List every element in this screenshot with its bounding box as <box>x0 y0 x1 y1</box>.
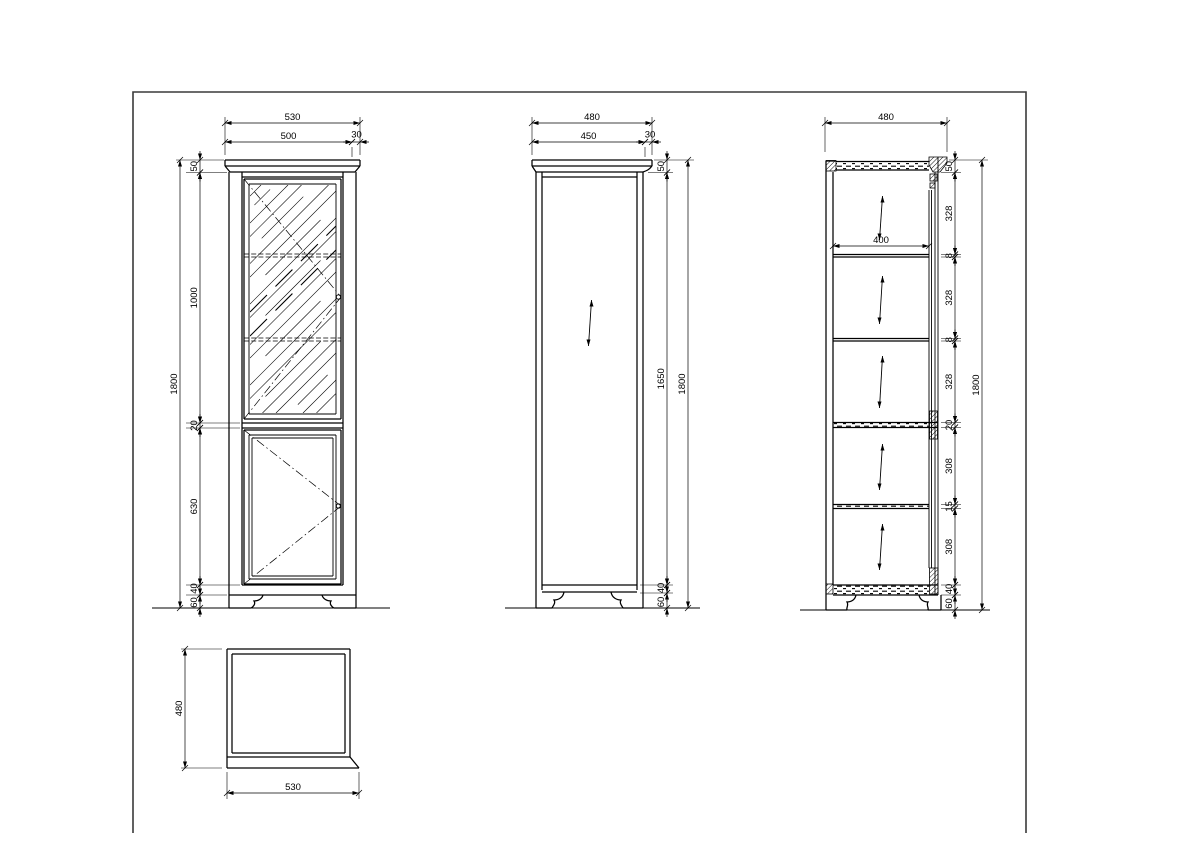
dim-section-shelf1: 8 <box>944 253 955 258</box>
shelf-adjust-arrow <box>880 196 883 240</box>
dim-side-height-total: 1800 <box>677 373 688 394</box>
crown-profile <box>643 166 652 172</box>
dim-front-crown-height: 50 <box>189 161 200 172</box>
dim-top-width: 530 <box>285 782 301 793</box>
front-view: 530500301800501000206304060 <box>152 112 390 617</box>
dim-section-bay3: 328 <box>944 374 955 390</box>
dim-front-width-body: 500 <box>281 131 297 142</box>
dim-section-shelf2: 8 <box>944 337 955 342</box>
dim-side-foot: 60 <box>656 597 667 608</box>
right-foot-profile <box>322 595 334 608</box>
section-view: 4804005032883288328203081530840601800 <box>800 112 990 619</box>
dim-front-foot: 60 <box>189 597 200 608</box>
dim-section-foot: 60 <box>944 598 955 609</box>
side-view: 4804503050165040601800 <box>505 112 700 617</box>
dim-side-crown-overhang: 30 <box>645 130 656 141</box>
dim-front-height-total: 1800 <box>169 373 180 394</box>
shelf-adjust-arrow <box>880 276 883 324</box>
dim-section-height-total: 1800 <box>971 374 982 395</box>
dim-section-crown-height: 50 <box>944 161 955 172</box>
top-view: 480530 <box>174 646 362 799</box>
right-foot-profile <box>611 592 623 608</box>
dim-section-bay5: 308 <box>944 539 955 555</box>
left-foot-profile <box>251 595 263 608</box>
right-foot-profile <box>919 595 928 610</box>
left-foot-profile <box>847 595 856 610</box>
dim-side-crown-height: 50 <box>656 161 667 172</box>
dim-section-shelf-width: 400 <box>873 235 889 246</box>
dim-side-depth-body: 450 <box>581 131 597 142</box>
dim-side-depth-total: 480 <box>584 112 600 123</box>
dim-front-crown-overhang: 30 <box>351 130 362 141</box>
dim-side-inner-height: 1650 <box>656 368 667 389</box>
sheet-border <box>133 92 1026 833</box>
dim-section-depth-total: 480 <box>878 112 894 123</box>
left-foot-profile <box>552 592 564 608</box>
dim-section-bay2: 328 <box>944 290 955 306</box>
shelf-adjust-arrow <box>880 444 883 490</box>
door-swing-lines <box>244 179 341 584</box>
technical-drawing: 530500301800501000206304060 480450305016… <box>0 0 1191 842</box>
shelf-adjust-arrow <box>880 524 883 570</box>
shelf-adjust-arrow <box>880 356 883 408</box>
glass-hatching <box>250 185 336 413</box>
door-handle <box>336 295 340 299</box>
dim-front-glass-door: 1000 <box>189 287 200 308</box>
dim-top-depth: 480 <box>174 701 185 717</box>
dim-front-lower-door: 630 <box>189 499 200 515</box>
shelf-adjust-arrow <box>589 300 592 346</box>
dim-section-bay1: 328 <box>944 206 955 222</box>
dim-front-width-total: 530 <box>285 112 301 123</box>
dim-section-bay4: 308 <box>944 458 955 474</box>
